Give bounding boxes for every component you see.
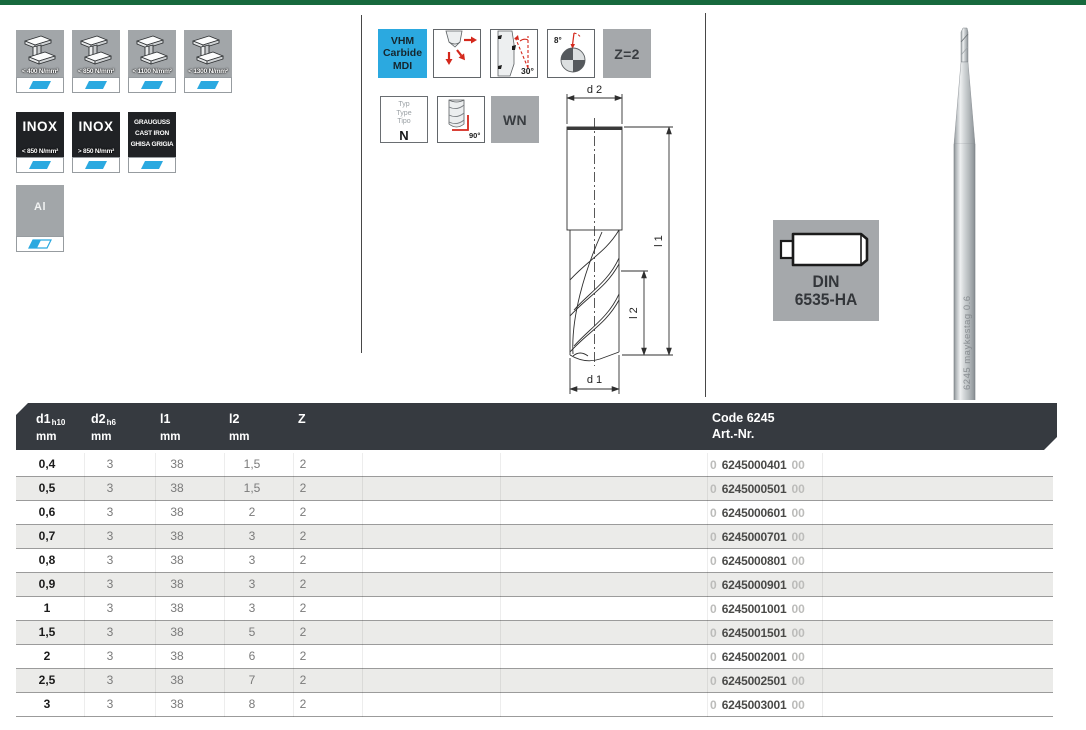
- material-inox-gt850: INOX > 850 N/mm²: [72, 112, 120, 173]
- cell-artnr: 0624500150100: [710, 621, 805, 645]
- dim-l2-label: l 2: [628, 307, 640, 319]
- material-inox-lt850: INOX < 850 N/mm²: [16, 112, 64, 173]
- artnr-prefix: 0: [710, 626, 717, 640]
- cell-d1: 3: [16, 693, 78, 716]
- flute-count-label: Z=2: [614, 46, 639, 62]
- din-label-line1: DIN: [777, 272, 875, 292]
- cell-l1: 38: [150, 477, 204, 500]
- vhm-line3: MDI: [393, 60, 412, 73]
- point-angle-icon: 8°: [547, 29, 595, 78]
- suitability-half-icon: [23, 237, 57, 251]
- cell-artnr: 0624500200100: [710, 645, 805, 669]
- material-strength-label: < 850 N/mm²: [72, 68, 120, 75]
- table-row: 2,5 3 38 7 2 0624500250100: [16, 669, 1053, 693]
- artnr-prefix: 0: [710, 698, 717, 712]
- tool-photo: 6245 maykestag 0.6: [942, 12, 994, 400]
- cast-iron-label-de: GRAUGUSS: [131, 117, 174, 128]
- type-n-badge: Typ Type Tipo N: [380, 96, 428, 143]
- material-steel-850: < 850 N/mm²: [72, 30, 120, 93]
- cell-l1: 38: [150, 621, 204, 644]
- artnr-prefix: 0: [710, 578, 717, 592]
- cell-z: 2: [276, 597, 330, 620]
- typ-label-en: Type: [396, 110, 411, 119]
- cell-l1: 38: [150, 453, 204, 476]
- artnr-prefix: 0: [710, 482, 717, 496]
- cell-z: 2: [276, 693, 330, 716]
- artnr-prefix: 0: [710, 554, 717, 568]
- cell-d2: 3: [84, 525, 136, 548]
- table-row: 0,4 3 38 1,5 2 0624500040100: [16, 453, 1053, 477]
- helix-angle-graphic: 30°: [491, 30, 537, 77]
- flute-count-badge: Z=2: [603, 29, 651, 78]
- table-row: 2 3 38 6 2 0624500200100: [16, 645, 1053, 669]
- artnr-code: 6245000801: [722, 554, 787, 568]
- vhm-line1: VHM: [391, 35, 414, 48]
- artnr-suffix: 00: [791, 674, 804, 688]
- cell-d2: 3: [84, 477, 136, 500]
- typ-value: N: [399, 128, 408, 143]
- cell-d2: 3: [84, 453, 136, 476]
- top-accent-bar: [0, 0, 1086, 5]
- cell-d1: 0,8: [16, 549, 78, 572]
- artnr-code: 6245003001: [722, 698, 787, 712]
- cell-z: 2: [276, 621, 330, 644]
- suitability-full-icon: [23, 158, 57, 172]
- tool-laser-marking: 6245 maykestag 0.6: [962, 295, 973, 390]
- artnr-code: 6245000701: [722, 530, 787, 544]
- cell-d2: 3: [84, 621, 136, 644]
- artnr-code: 6245002001: [722, 650, 787, 664]
- suitability-full-icon: [79, 78, 113, 92]
- table-row: 1 3 38 3 2 0624500100100: [16, 597, 1053, 621]
- cell-l2: 6: [224, 645, 280, 668]
- artnr-suffix: 00: [791, 578, 804, 592]
- cell-l2: 1,5: [224, 477, 280, 500]
- material-strength-label: < 1300 N/mm²: [184, 68, 232, 75]
- cell-l1: 38: [150, 573, 204, 596]
- material-strength-label: > 850 N/mm²: [72, 148, 120, 155]
- artnr-code: 6245000401: [722, 458, 787, 472]
- cell-z: 2: [276, 669, 330, 692]
- cell-artnr: 0624500070100: [710, 525, 805, 549]
- cell-z: 2: [276, 549, 330, 572]
- table-row: 3 3 38 8 2 0624500300100: [16, 693, 1053, 717]
- suitability-strip: [72, 157, 120, 173]
- dim-l1-label: l 1: [653, 235, 665, 247]
- cell-l1: 38: [150, 549, 204, 572]
- cell-l2: 8: [224, 693, 280, 716]
- artnr-suffix: 00: [791, 626, 804, 640]
- cast-iron-label-en: CAST IRON: [131, 128, 174, 139]
- cell-d2: 3: [84, 549, 136, 572]
- header-l2: l2 mm: [229, 410, 249, 443]
- suitability-strip: [128, 77, 176, 93]
- section-divider-left: [361, 15, 362, 353]
- inox-label: INOX: [78, 119, 113, 134]
- artnr-prefix: 0: [710, 674, 717, 688]
- suitability-full-icon: [23, 78, 57, 92]
- suitability-strip: [16, 157, 64, 173]
- column-divider: [707, 453, 708, 717]
- header-d1: d1h10 mm: [36, 410, 65, 443]
- artnr-suffix: 00: [791, 458, 804, 472]
- material-aluminium: Al: [16, 185, 64, 252]
- cell-artnr: 0624500300100: [710, 693, 805, 717]
- steel-ibeam-icon: [20, 33, 60, 65]
- header-z: Z: [298, 410, 306, 428]
- cell-l1: 38: [150, 501, 204, 524]
- typ-label-de: Typ: [398, 101, 409, 110]
- cell-d1: 1: [16, 597, 78, 620]
- artnr-suffix: 00: [791, 506, 804, 520]
- chip-direction-graphic: [434, 30, 480, 77]
- cell-artnr: 0624500040100: [710, 453, 805, 477]
- cell-l2: 3: [224, 549, 280, 572]
- cell-artnr: 0624500080100: [710, 549, 805, 573]
- cell-d1: 2,5: [16, 669, 78, 692]
- end-mill-drawing: d 2 l 1 l 2 d 1: [540, 80, 710, 400]
- suitability-full-icon: [135, 78, 169, 92]
- cell-d1: 0,4: [16, 453, 78, 476]
- din-label-line2: 6535-HA: [777, 290, 875, 310]
- inox-label: INOX: [22, 119, 57, 134]
- cell-l1: 38: [150, 669, 204, 692]
- artnr-code: 6245000601: [722, 506, 787, 520]
- suitability-strip: [16, 236, 64, 252]
- material-strength-label: < 850 N/mm²: [16, 148, 64, 155]
- cell-z: 2: [276, 477, 330, 500]
- cell-d2: 3: [84, 669, 136, 692]
- cell-artnr: 0624500060100: [710, 501, 805, 525]
- cell-l1: 38: [150, 693, 204, 716]
- shank-type-graphic: [773, 220, 879, 270]
- cast-iron-label-it: GHISA GRIGIA: [131, 139, 174, 150]
- cell-z: 2: [276, 645, 330, 668]
- material-strength-label: < 400 N/mm²: [16, 68, 64, 75]
- table-row: 1,5 3 38 5 2 0624500150100: [16, 621, 1053, 645]
- cell-l2: 1,5: [224, 453, 280, 476]
- artnr-suffix: 00: [791, 602, 804, 616]
- steel-ibeam-icon: [132, 33, 172, 65]
- cell-l1: 38: [150, 645, 204, 668]
- cell-artnr: 0624500100100: [710, 597, 805, 621]
- helix-angle-icon: 30°: [490, 29, 538, 78]
- column-divider: [293, 453, 294, 717]
- wn-label: WN: [503, 112, 527, 128]
- cell-l2: 3: [224, 525, 280, 548]
- cell-artnr: 0624500050100: [710, 477, 805, 501]
- cell-d1: 0,6: [16, 501, 78, 524]
- material-steel-400: < 400 N/mm²: [16, 30, 64, 93]
- header-code: Code 6245 Art.-Nr.: [712, 410, 775, 442]
- cell-l2: 5: [224, 621, 280, 644]
- steel-ibeam-icon: [188, 33, 228, 65]
- point-angle-label: 8°: [554, 36, 562, 45]
- dim-d1-label: d 1: [587, 374, 602, 386]
- table-row: 0,5 3 38 1,5 2 0624500050100: [16, 477, 1053, 501]
- cell-l2: 3: [224, 597, 280, 620]
- column-divider: [224, 453, 225, 717]
- steel-ibeam-icon: [76, 33, 116, 65]
- artnr-suffix: 00: [791, 650, 804, 664]
- cell-l1: 38: [150, 525, 204, 548]
- cell-l1: 38: [150, 597, 204, 620]
- header-d2: d2h6 mm: [91, 410, 116, 443]
- table-rows: 0,4 3 38 1,5 2 0624500040100 0,5 3 38 1,…: [16, 453, 1053, 717]
- cell-artnr: 0624500090100: [710, 573, 805, 597]
- artnr-code: 6245000501: [722, 482, 787, 496]
- column-divider: [500, 453, 501, 717]
- cell-d2: 3: [84, 597, 136, 620]
- cell-d2: 3: [84, 645, 136, 668]
- vhm-carbide-badge: VHM Carbide MDI: [378, 29, 427, 78]
- cell-d1: 2: [16, 645, 78, 668]
- artnr-code: 6245001001: [722, 602, 787, 616]
- cell-d2: 3: [84, 693, 136, 716]
- catalog-page: < 400 N/mm² < 850 N/mm² < 1100 N/mm²: [0, 0, 1086, 730]
- wn-badge: WN: [491, 96, 539, 143]
- table-row: 0,6 3 38 2 2 0624500060100: [16, 501, 1053, 525]
- suitability-full-icon: [135, 158, 169, 172]
- artnr-suffix: 00: [791, 698, 804, 712]
- cell-d2: 3: [84, 501, 136, 524]
- header-l1: l1 mm: [160, 410, 180, 443]
- artnr-prefix: 0: [710, 506, 717, 520]
- artnr-code: 6245000901: [722, 578, 787, 592]
- artnr-code: 6245001501: [722, 626, 787, 640]
- artnr-suffix: 00: [791, 530, 804, 544]
- din-6535-ha-badge: DIN 6535-HA: [773, 220, 879, 321]
- artnr-suffix: 00: [791, 554, 804, 568]
- table-row: 0,7 3 38 3 2 0624500070100: [16, 525, 1053, 549]
- suitability-strip: [184, 77, 232, 93]
- material-cast-iron: GRAUGUSS CAST IRON GHISA GRIGIA: [128, 112, 176, 173]
- cell-l2: 7: [224, 669, 280, 692]
- artnr-prefix: 0: [710, 602, 717, 616]
- table-row: 0,9 3 38 3 2 0624500090100: [16, 573, 1053, 597]
- cell-artnr: 0624500250100: [710, 669, 805, 693]
- cell-d1: 0,9: [16, 573, 78, 596]
- suitability-strip: [128, 157, 176, 173]
- corner-angle-icon: 90°: [437, 96, 485, 143]
- cell-l2: 2: [224, 501, 280, 524]
- cell-z: 2: [276, 573, 330, 596]
- cell-d1: 1,5: [16, 621, 78, 644]
- table-row: 0,8 3 38 3 2 0624500080100: [16, 549, 1053, 573]
- dim-d2-label: d 2: [587, 84, 602, 96]
- cell-z: 2: [276, 501, 330, 524]
- column-divider: [362, 453, 363, 717]
- column-divider: [822, 453, 823, 717]
- material-steel-1300: < 1300 N/mm²: [184, 30, 232, 93]
- helix-angle-label: 30°: [521, 66, 534, 76]
- chip-direction-icon: [433, 29, 481, 78]
- artnr-prefix: 0: [710, 458, 717, 472]
- column-divider: [155, 453, 156, 717]
- suitability-full-icon: [79, 158, 113, 172]
- corner-angle-graphic: 90°: [438, 97, 484, 142]
- suitability-strip: [72, 77, 120, 93]
- cell-l2: 3: [224, 573, 280, 596]
- corner-angle-label: 90°: [469, 131, 480, 140]
- table-header: d1h10 mm d2h6 mm l1 mm l2 mm Z Code 6245…: [16, 403, 1057, 450]
- artnr-code: 6245002501: [722, 674, 787, 688]
- artnr-prefix: 0: [710, 650, 717, 664]
- material-strength-label: < 1100 N/mm²: [128, 68, 176, 75]
- point-angle-graphic: 8°: [548, 30, 594, 77]
- column-divider: [84, 453, 85, 717]
- cell-d2: 3: [84, 573, 136, 596]
- cell-z: 2: [276, 453, 330, 476]
- typ-label-it: Tipo: [397, 118, 410, 127]
- artnr-prefix: 0: [710, 530, 717, 544]
- cell-d1: 0,7: [16, 525, 78, 548]
- vhm-line2: Carbide: [383, 47, 422, 60]
- suitability-strip: [16, 77, 64, 93]
- cell-d1: 0,5: [16, 477, 78, 500]
- artnr-suffix: 00: [791, 482, 804, 496]
- material-steel-1100: < 1100 N/mm²: [128, 30, 176, 93]
- cell-z: 2: [276, 525, 330, 548]
- aluminium-label: Al: [34, 201, 46, 213]
- suitability-full-icon: [191, 78, 225, 92]
